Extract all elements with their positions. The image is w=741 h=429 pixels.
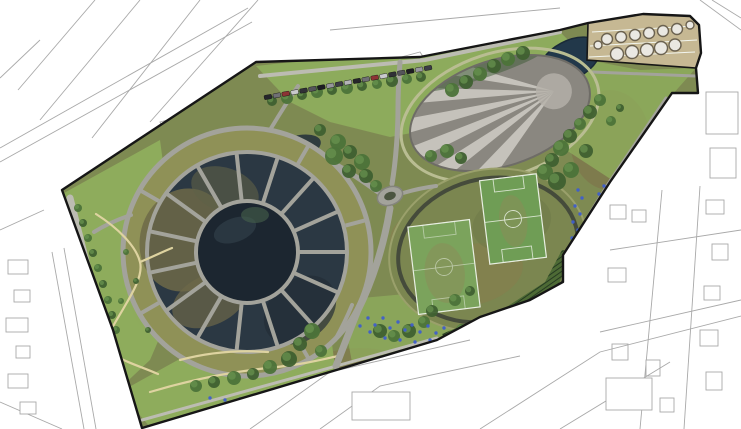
tree xyxy=(315,345,327,357)
person-dot xyxy=(442,326,445,329)
tree xyxy=(89,249,97,257)
tree-highlight xyxy=(326,148,336,158)
tree xyxy=(501,52,515,66)
tree xyxy=(343,145,357,159)
tree xyxy=(293,337,307,351)
tree xyxy=(84,234,92,242)
tree-highlight xyxy=(580,145,588,153)
tree xyxy=(583,105,597,119)
tree-highlight xyxy=(282,352,291,361)
person-dot xyxy=(396,320,399,323)
tree-highlight xyxy=(343,165,351,173)
tree-highlight xyxy=(549,173,559,183)
tree-highlight xyxy=(389,331,396,338)
tree-highlight xyxy=(95,265,99,269)
tree xyxy=(440,144,454,158)
tree-highlight xyxy=(355,155,364,164)
tree-highlight xyxy=(75,205,79,209)
tank xyxy=(594,41,602,49)
tree xyxy=(190,380,202,392)
tank xyxy=(641,44,654,57)
tree-highlight xyxy=(617,105,621,109)
tree xyxy=(553,140,569,156)
tree-highlight xyxy=(331,135,340,144)
football-pitch-south xyxy=(408,220,480,315)
tree-highlight xyxy=(133,278,136,281)
person-dot xyxy=(373,323,376,326)
tree-highlight xyxy=(419,317,426,324)
tank xyxy=(655,42,668,55)
tank xyxy=(669,39,681,51)
tree xyxy=(325,147,343,165)
tree-highlight xyxy=(474,68,482,76)
tree-highlight xyxy=(427,306,434,313)
tree-highlight xyxy=(460,76,468,84)
person-dot xyxy=(410,323,413,326)
tree xyxy=(445,83,459,97)
tree xyxy=(416,72,426,82)
tree xyxy=(118,298,124,304)
tree-highlight xyxy=(517,47,525,55)
tree xyxy=(354,154,370,170)
tree xyxy=(459,75,473,89)
tank xyxy=(644,28,655,39)
tree-highlight xyxy=(305,324,314,333)
person-dot xyxy=(443,338,446,341)
tree-highlight xyxy=(118,298,121,301)
tree xyxy=(449,294,461,306)
person-dot xyxy=(223,398,226,401)
tree-highlight xyxy=(123,249,126,252)
tree-highlight xyxy=(109,312,113,316)
tree-highlight xyxy=(403,75,409,81)
tree xyxy=(425,150,437,162)
person-dot xyxy=(580,196,583,199)
tank xyxy=(630,30,641,41)
tree-highlight xyxy=(607,117,613,123)
football-pitch-north xyxy=(480,174,547,264)
person-dot xyxy=(381,316,384,319)
tree xyxy=(372,79,382,89)
tree xyxy=(616,104,624,112)
tree xyxy=(563,162,579,178)
person-dot xyxy=(426,324,429,327)
tank xyxy=(658,26,669,37)
person-dot xyxy=(208,396,211,399)
tree xyxy=(388,330,400,342)
tree-highlight xyxy=(417,73,423,79)
tree-highlight xyxy=(145,327,148,330)
tree-highlight xyxy=(564,163,573,172)
tree xyxy=(342,164,356,178)
person-dot xyxy=(576,188,579,191)
tree xyxy=(263,360,277,374)
tree-highlight xyxy=(294,338,302,346)
tree xyxy=(455,152,467,164)
tree xyxy=(516,46,530,60)
tree xyxy=(133,278,139,284)
tree xyxy=(314,124,326,136)
tree-highlight xyxy=(538,165,547,174)
tree xyxy=(370,180,382,192)
person-dot xyxy=(366,316,369,319)
tree-highlight xyxy=(564,130,572,138)
tree xyxy=(74,204,82,212)
tree xyxy=(426,305,438,317)
tree xyxy=(304,323,320,339)
person-dot xyxy=(383,336,386,339)
tree-highlight xyxy=(264,361,272,369)
tree-highlight xyxy=(450,295,457,302)
tree-highlight xyxy=(502,53,510,61)
tree-highlight xyxy=(316,346,323,353)
tree xyxy=(94,264,102,272)
tree-highlight xyxy=(488,60,496,68)
park-area xyxy=(0,0,741,429)
tree-highlight xyxy=(360,170,368,178)
tree xyxy=(594,94,606,106)
tree xyxy=(79,219,87,227)
tree-highlight xyxy=(90,250,94,254)
tree xyxy=(548,172,566,190)
tree xyxy=(359,169,373,183)
tree xyxy=(579,144,593,158)
tree xyxy=(208,376,220,388)
tree-highlight xyxy=(456,153,463,160)
tree-highlight xyxy=(595,95,602,102)
tree-highlight xyxy=(80,220,84,224)
person-dot xyxy=(578,212,581,215)
tree-highlight xyxy=(315,125,322,132)
tree-highlight xyxy=(546,154,554,162)
person-dot xyxy=(368,330,371,333)
tree-highlight xyxy=(472,323,478,329)
person-dot xyxy=(568,252,571,255)
masterplan-stage xyxy=(0,0,741,429)
tree-highlight xyxy=(554,141,563,150)
tree xyxy=(104,296,112,304)
tank xyxy=(626,46,639,59)
tree xyxy=(465,286,475,296)
tree-canopy xyxy=(471,322,481,332)
tank xyxy=(616,32,627,43)
tree xyxy=(574,118,586,130)
tree-highlight xyxy=(426,151,433,158)
person-dot xyxy=(602,184,605,187)
tank xyxy=(686,21,694,29)
person-dot xyxy=(413,340,416,343)
person-dot xyxy=(418,330,421,333)
tree-highlight xyxy=(441,145,449,153)
tank xyxy=(611,48,624,61)
masterplan-svg xyxy=(0,0,741,429)
tree xyxy=(606,116,616,126)
tree xyxy=(123,249,129,255)
tree xyxy=(227,371,241,385)
tree-highlight xyxy=(209,377,216,384)
tree-highlight xyxy=(371,181,378,188)
tree-highlight xyxy=(466,287,472,293)
person-dot xyxy=(565,260,568,263)
person-dot xyxy=(434,331,437,334)
tree xyxy=(99,280,107,288)
person-dot xyxy=(398,338,401,341)
person-dot xyxy=(403,328,406,331)
tree xyxy=(145,327,151,333)
tree-highlight xyxy=(85,235,89,239)
tree-highlight xyxy=(100,281,104,285)
person-dot xyxy=(574,244,577,247)
tree-highlight xyxy=(228,372,236,380)
tree xyxy=(247,368,259,380)
tree-highlight xyxy=(248,369,255,376)
tree xyxy=(402,74,412,84)
tree-highlight xyxy=(191,381,198,388)
tree-highlight xyxy=(344,146,352,154)
tree xyxy=(281,351,297,367)
person-dot xyxy=(358,324,361,327)
person-dot xyxy=(453,334,456,337)
tree xyxy=(471,322,481,332)
tree-highlight xyxy=(575,119,582,126)
tree xyxy=(473,67,487,81)
tree xyxy=(487,59,501,73)
tree-highlight xyxy=(446,84,454,92)
tree xyxy=(563,129,577,143)
person-dot xyxy=(573,204,576,207)
tank xyxy=(602,34,613,45)
tree-highlight xyxy=(105,297,109,301)
tree-highlight xyxy=(584,106,592,114)
tank-farm xyxy=(587,14,701,68)
person-dot xyxy=(388,326,391,329)
tank xyxy=(672,24,683,35)
person-dot xyxy=(571,220,574,223)
tree-highlight xyxy=(373,80,379,86)
